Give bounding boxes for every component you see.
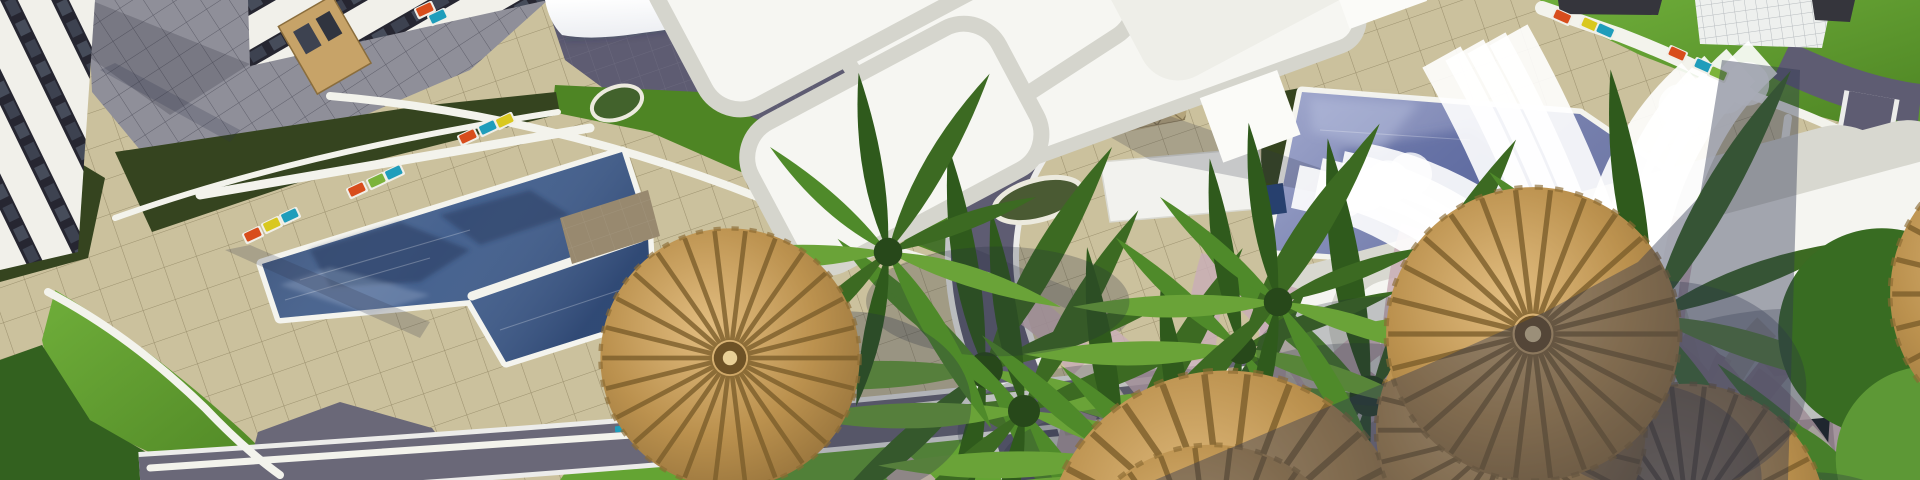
resort-aerial-render: Aerial 3D architectural render of a reso… [0,0,1920,480]
clubhouse-roof-grid [1695,0,1832,48]
dark-roof-1 [1558,0,1662,15]
dark-roof-2 [1812,0,1855,22]
render-viewport: Aerial 3D architectural render of a reso… [0,0,1920,480]
